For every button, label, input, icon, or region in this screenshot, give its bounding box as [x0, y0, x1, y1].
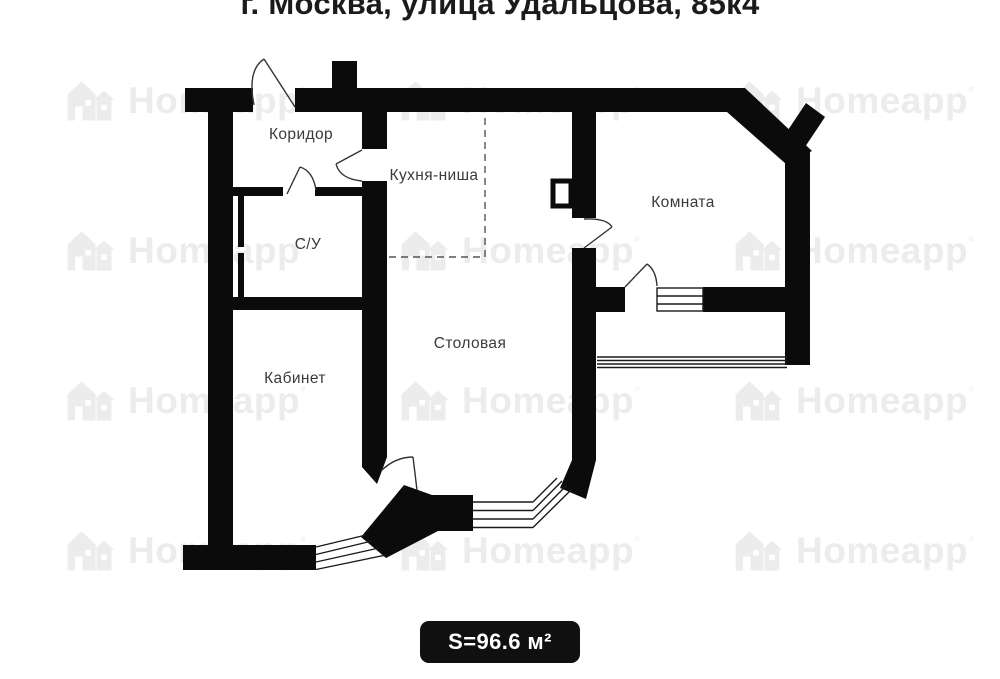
page-title: г. Москва, улица Удальцова, 85к4	[0, 0, 1000, 22]
wall-office-right	[362, 181, 387, 453]
bay-right-window-diagonal	[533, 478, 572, 528]
wall-bay-center	[361, 485, 473, 558]
bathroom-door-arc	[287, 167, 316, 194]
kitchen-niche-dashed-boundary	[389, 114, 485, 257]
floorplan-svg: Коридор Кухня-ниша С/У Комната Кабинет С…	[0, 0, 1000, 679]
doors	[252, 59, 657, 490]
room-label-corridor: Коридор	[269, 126, 333, 143]
wall-room-bottom-right	[703, 287, 787, 312]
dining-room-door-arc	[584, 219, 612, 248]
wall-dining-right-upper	[572, 112, 596, 218]
office-door-arc	[381, 457, 417, 490]
vent-shaft-box	[553, 181, 571, 206]
wall-dining-right-lower	[572, 248, 596, 460]
wall-left	[208, 108, 233, 553]
room-label-bathroom: С/У	[295, 236, 322, 253]
room-window-frame	[657, 288, 703, 311]
bay-right-window	[473, 502, 533, 528]
wall-right	[785, 150, 810, 365]
wall-shaft-upper	[238, 196, 244, 247]
room-label-office: Кабинет	[264, 370, 326, 387]
balcony-door-arc	[625, 264, 657, 287]
wall-stub-top	[332, 61, 357, 89]
wall-top	[295, 88, 745, 112]
room-label-kitchen-niche: Кухня-ниша	[390, 167, 479, 184]
room-label-dining: Столовая	[434, 335, 507, 352]
wall-bottom	[183, 545, 316, 570]
wall-bathroom-top-right	[315, 187, 362, 196]
area-badge: S=96.6 м²	[420, 621, 580, 663]
wall-room-bottom-left	[590, 287, 625, 312]
entrance-door-arc	[252, 59, 295, 107]
room-label-room: Комната	[651, 194, 715, 211]
wall-bathroom-top-left	[232, 187, 283, 196]
balcony-window	[597, 357, 787, 368]
floorplan-page: г. Москва, улица Удальцова, 85к4 Homeapp…	[0, 0, 1000, 679]
room-labels: Коридор Кухня-ниша С/У Комната Кабинет С…	[264, 126, 715, 387]
wall-corridor-right-upper	[362, 112, 387, 149]
wall-bay-right-end	[560, 460, 596, 499]
area-badge-label: S=96.6 м²	[448, 629, 552, 655]
wall-shaft-lower	[238, 253, 244, 297]
wall-office-tip	[362, 450, 387, 484]
wall-bathroom-bottom	[232, 297, 362, 310]
corridor-kitchen-door-arc	[336, 150, 362, 181]
